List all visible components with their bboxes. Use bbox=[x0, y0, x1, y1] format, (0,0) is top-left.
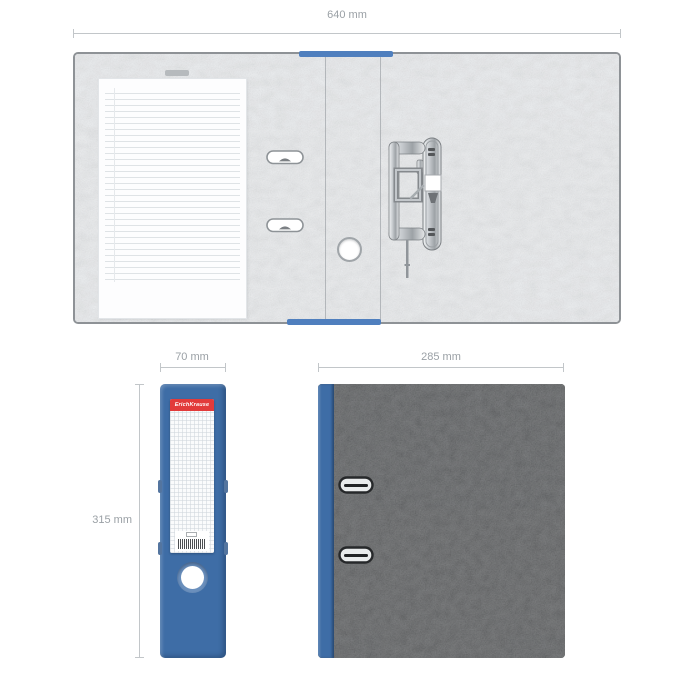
spine-view: ErichKrause bbox=[160, 384, 226, 658]
dimension-label-binder-height: 315 mm bbox=[52, 514, 132, 526]
ruled-lines bbox=[105, 88, 240, 282]
spine-fold-line bbox=[325, 54, 326, 322]
dimension-tick bbox=[225, 363, 226, 372]
dimension-label-cover-width: 285 mm bbox=[391, 351, 491, 363]
dimension-label-open-width: 640 mm bbox=[297, 9, 397, 21]
paper-margin-line bbox=[114, 88, 115, 282]
lever-arch-mechanism bbox=[387, 132, 447, 284]
spine-fold-line bbox=[380, 54, 381, 322]
front-spine-strip bbox=[318, 384, 334, 658]
ring-slot bbox=[266, 150, 304, 165]
dimension-tick bbox=[160, 363, 161, 372]
paper-insert bbox=[99, 79, 246, 318]
product-dimensions-diagram: 640 mm bbox=[0, 0, 700, 700]
spine-finger-hole bbox=[181, 566, 204, 589]
spine-label: ErichKrause bbox=[170, 399, 214, 553]
spine-edge-strip bbox=[299, 51, 393, 57]
barcode-caption-box bbox=[186, 532, 197, 537]
barcode bbox=[175, 531, 209, 551]
spine-edge-strip bbox=[287, 319, 381, 325]
dimension-tick bbox=[135, 384, 144, 385]
dimension-label-spine-width: 70 mm bbox=[152, 351, 232, 363]
barcode-bars bbox=[178, 539, 206, 549]
open-binder-surface bbox=[75, 54, 619, 322]
cover-ring-slot bbox=[338, 546, 374, 564]
dimension-tick bbox=[135, 657, 144, 658]
dimension-line-binder-height bbox=[139, 384, 140, 658]
dimension-tick bbox=[318, 363, 319, 372]
dimension-tick bbox=[620, 29, 621, 38]
dimension-line-cover-width bbox=[318, 367, 564, 368]
label-tab bbox=[165, 70, 189, 76]
dimension-tick bbox=[563, 363, 564, 372]
hinge-notch bbox=[158, 480, 162, 493]
ring-slot bbox=[266, 218, 304, 233]
dimension-line-open-width bbox=[73, 33, 621, 34]
hinge-notch bbox=[224, 480, 228, 493]
hinge-notch bbox=[224, 542, 228, 555]
finger-hole bbox=[337, 237, 362, 262]
marble-cover-texture bbox=[318, 384, 565, 658]
dimension-line-spine-width bbox=[160, 367, 226, 368]
cover-ring-slot bbox=[338, 476, 374, 494]
dimension-tick bbox=[73, 29, 74, 38]
open-binder-view bbox=[73, 52, 621, 324]
front-cover-view bbox=[318, 384, 565, 658]
hinge-notch bbox=[158, 542, 162, 555]
brand-band: ErichKrause bbox=[170, 399, 214, 411]
